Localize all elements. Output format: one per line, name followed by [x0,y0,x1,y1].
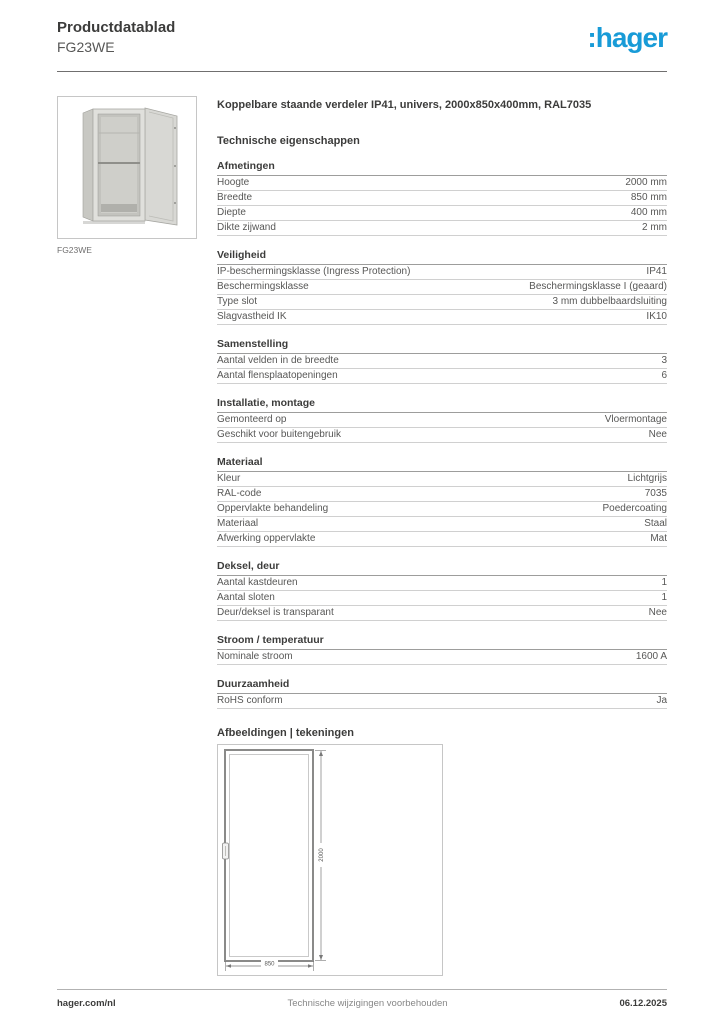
spec-value: Staal [644,518,667,529]
spec-label: Aantal kastdeuren [217,577,298,588]
product-photo-column: FG23WE [57,96,197,976]
spec-label: Diepte [217,207,246,218]
table-row: Geschikt voor buitengebruikNee [217,428,667,443]
spec-value: 3 mm dubbelbaardsluiting [552,296,667,307]
spec-label: Afwerking oppervlakte [217,533,315,544]
spec-label: Aantal sloten [217,592,275,603]
spec-value: 400 mm [631,207,667,218]
spec-section: Installatie, montageGemonteerd opVloermo… [217,397,667,443]
table-row: Slagvastheid IKIK10 [217,310,667,325]
table-row: Afwerking oppervlakteMat [217,532,667,547]
spec-value: IK10 [646,311,667,322]
table-row: KleurLichtgrijs [217,472,667,487]
spec-label: RoHS conform [217,695,283,706]
spec-section-title: Duurzaamheid [217,678,667,694]
spec-section: AfmetingenHoogte2000 mmBreedte850 mmDiep… [217,160,667,236]
datasheet-page: Productdatablad FG23WE :hager [0,0,724,1024]
table-row: MateriaalStaal [217,517,667,532]
spec-label: RAL-code [217,488,261,499]
footer-website-link[interactable]: hager.com/nl [57,998,116,1009]
spec-value: 1600 A [636,651,667,662]
page-header: Productdatablad FG23WE :hager [57,18,667,72]
spec-section-title: Deksel, deur [217,560,667,576]
table-row: Oppervlakte behandelingPoedercoating [217,502,667,517]
spec-label: Type slot [217,296,257,307]
drawings-heading: Afbeeldingen | tekeningen [217,727,667,739]
spec-label: Nominale stroom [217,651,293,662]
spec-value: 2 mm [642,222,667,233]
spec-value: IP41 [646,266,667,277]
spec-value: 6 [661,370,667,381]
product-photo-frame [57,96,197,239]
main-area: FG23WE Koppelbare staande verdeler IP41,… [57,96,667,976]
table-row: Gemonteerd opVloermontage [217,413,667,428]
product-code: FG23WE [57,38,175,56]
spec-value: Nee [649,429,667,440]
table-row: Nominale stroom1600 A [217,650,667,665]
spec-column: Koppelbare staande verdeler IP41, univer… [217,96,667,976]
table-row: Aantal flensplaatopeningen6 [217,369,667,384]
dimension-height-label: 2000 [319,847,325,861]
spec-section-title: Veiligheid [217,249,667,265]
table-row: Breedte850 mm [217,191,667,206]
spec-value: Nee [649,607,667,618]
spec-value: Beschermingsklasse I (geaard) [529,281,667,292]
spec-label: Oppervlakte behandeling [217,503,328,514]
spec-value: 2000 mm [625,177,667,188]
spec-value: 1 [661,592,667,603]
table-row: Hoogte2000 mm [217,176,667,191]
tech-sections: AfmetingenHoogte2000 mmBreedte850 mmDiep… [217,160,667,709]
spec-section: VeiligheidIP-beschermingsklasse (Ingress… [217,249,667,325]
spec-value: 3 [661,355,667,366]
hager-logo: :hager [587,24,667,52]
product-photo-caption: FG23WE [57,245,197,255]
table-row: Aantal sloten1 [217,591,667,606]
spec-label: Beschermingsklasse [217,281,309,292]
table-row: BeschermingsklasseBeschermingsklasse I (… [217,280,667,295]
spec-label: Aantal velden in de breedte [217,355,339,366]
tech-properties-heading: Technische eigenschappen [217,135,667,147]
table-row: Aantal velden in de breedte3 [217,354,667,369]
spec-section: DuurzaamheidRoHS conformJa [217,678,667,709]
spec-section-title: Materiaal [217,456,667,472]
table-row: RAL-code7035 [217,487,667,502]
table-row: Deur/deksel is transparantNee [217,606,667,621]
spec-value: Poedercoating [603,503,668,514]
spec-label: Dikte zijwand [217,222,276,233]
product-photo [65,103,189,231]
table-row: Diepte400 mm [217,206,667,221]
spec-label: Deur/deksel is transparant [217,607,334,618]
spec-section: Deksel, deurAantal kastdeuren1Aantal slo… [217,560,667,621]
spec-section-title: Stroom / temperatuur [217,634,667,650]
spec-value: Ja [656,695,667,706]
spec-label: Slagvastheid IK [217,311,287,322]
spec-section-title: Afmetingen [217,160,667,176]
spec-label: Breedte [217,192,252,203]
table-row: Aantal kastdeuren1 [217,576,667,591]
dimension-width-label: 850 [264,961,275,967]
spec-section: SamenstellingAantal velden in de breedte… [217,338,667,384]
product-title: Koppelbare staande verdeler IP41, univer… [217,99,667,111]
spec-value: Mat [650,533,667,544]
spec-label: Kleur [217,473,240,484]
spec-section-title: Installatie, montage [217,397,667,413]
spec-label: Geschikt voor buitengebruik [217,429,341,440]
spec-value: 1 [661,577,667,588]
header-titles: Productdatablad FG23WE [57,18,175,56]
spec-section: Stroom / temperatuurNominale stroom1600 … [217,634,667,665]
spec-value: 850 mm [631,192,667,203]
spec-section: MateriaalKleurLichtgrijsRAL-code7035Oppe… [217,456,667,547]
spec-label: IP-beschermingsklasse (Ingress Protectio… [217,266,410,277]
spec-label: Hoogte [217,177,249,188]
table-row: Type slot3 mm dubbelbaardsluiting [217,295,667,310]
spec-section-title: Samenstelling [217,338,667,354]
spec-label: Materiaal [217,518,258,529]
spec-label: Aantal flensplaatopeningen [217,370,338,381]
spec-label: Gemonteerd op [217,414,287,425]
footer-date: 06.12.2025 [619,998,667,1009]
page-footer: hager.com/nl Technische wijzigingen voor… [57,989,667,1009]
spec-value: Vloermontage [605,414,667,425]
technical-drawing-frame: 2000 850 [217,744,443,976]
table-row: Dikte zijwand2 mm [217,221,667,236]
spec-value: 7035 [645,488,667,499]
document-type-title: Productdatablad [57,18,175,38]
technical-drawing: 2000 850 [218,745,442,975]
spec-value: Lichtgrijs [628,473,667,484]
table-row: IP-beschermingsklasse (Ingress Protectio… [217,265,667,280]
table-row: RoHS conformJa [217,694,667,709]
footer-disclaimer: Technische wijzigingen voorbehouden [288,998,448,1009]
